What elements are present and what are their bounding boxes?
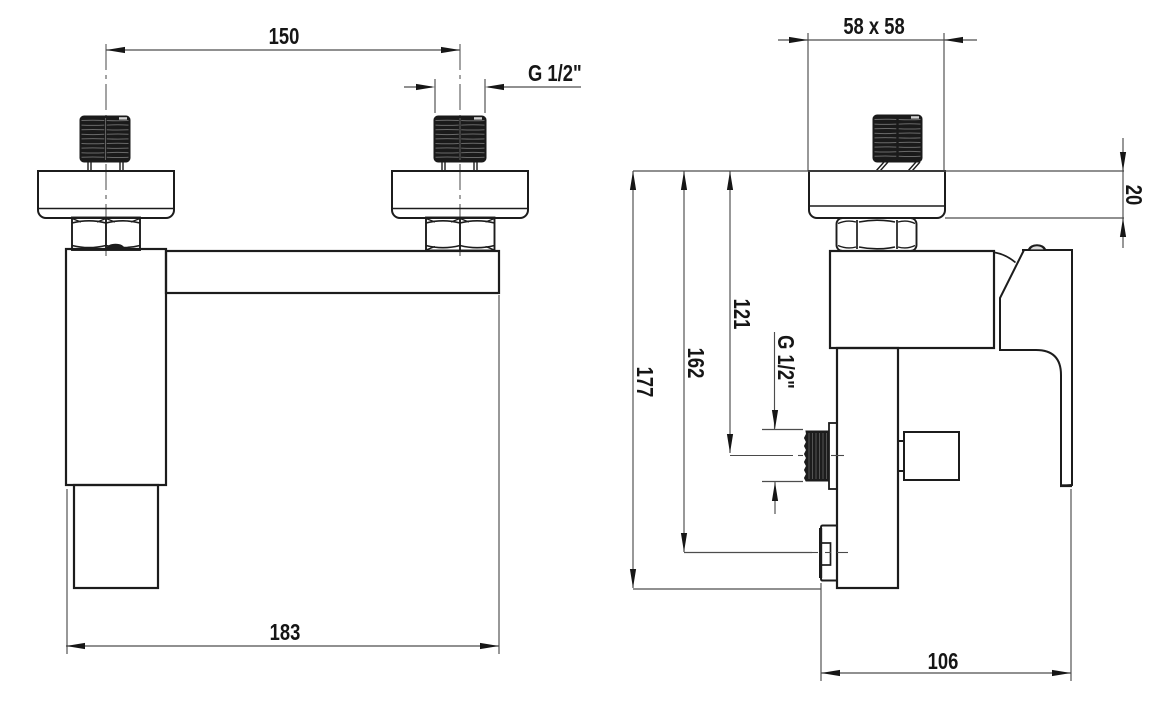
svg-text:20: 20 bbox=[1120, 185, 1145, 205]
svg-text:150: 150 bbox=[269, 24, 300, 49]
svg-text:G 1/2": G 1/2" bbox=[772, 335, 797, 389]
svg-text:58 x 58: 58 x 58 bbox=[843, 14, 904, 39]
svg-text:162: 162 bbox=[682, 348, 707, 379]
svg-text:183: 183 bbox=[270, 620, 301, 645]
svg-text:121: 121 bbox=[728, 299, 753, 330]
svg-text:G 1/2": G 1/2" bbox=[528, 61, 582, 86]
svg-text:177: 177 bbox=[631, 367, 656, 398]
svg-text:106: 106 bbox=[928, 649, 959, 674]
